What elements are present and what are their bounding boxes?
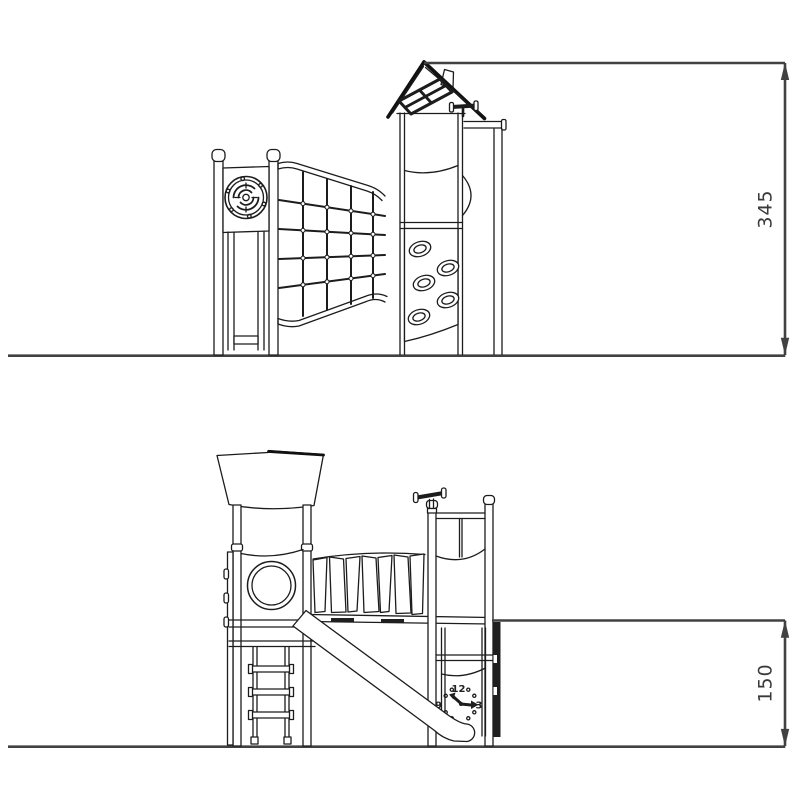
arrowhead-down [781,338,789,356]
upper-panel-edge [405,166,459,173]
porthole [248,562,296,610]
post [233,505,241,746]
slide [293,611,475,742]
bridge-slats [313,554,424,615]
arrowhead-up [781,620,789,638]
post-cap [212,150,225,162]
technical-drawing-canvas: 345 [0,0,800,800]
clock-panel-top [442,668,486,676]
post-cap [427,501,438,509]
side-panel-edge [228,552,234,745]
platform-deck [400,223,463,229]
ladder [249,647,294,744]
maze-game [225,177,267,219]
net-bottom-rail [278,294,387,321]
deck-dash [381,619,404,623]
side-rail [464,120,506,355]
post [214,160,223,355]
post-collar [232,544,243,551]
front-slide [228,232,264,350]
arrowhead-down [781,729,789,747]
post [485,504,493,746]
window-ornament [399,79,452,114]
hold-bump [224,569,229,579]
railing-mullion [460,519,463,558]
post-cap [484,496,495,505]
clock-number-3: 3 [476,701,483,712]
ladder-rung [251,689,291,695]
hold-bump [224,593,229,603]
panel-curve [436,549,485,560]
slide-end-bar [234,336,258,344]
edge-panel-dark [494,622,501,737]
climbing-net [278,162,387,327]
maze-panel-module [212,150,280,356]
hold-bump [224,617,229,627]
dimension-345: 345 [424,63,789,356]
porthole-bulge [463,176,472,216]
net-top-rail [278,162,385,196]
edge-panel-notch [494,655,498,663]
dimension-label-bottom: 150 [755,663,777,702]
tower-module [388,62,506,355]
left-tower [217,451,324,747]
steering-handle [414,488,447,513]
ladder-rung [251,712,291,718]
bottom-elevation-view: 12 3 9 150 [8,451,789,747]
railing-bar [436,513,485,519]
net-connectors [301,202,375,287]
clock-number-12: 12 [452,684,466,695]
dimension-label-top: 345 [755,189,777,228]
arrowhead-up [781,63,789,81]
deck-dash [331,618,354,622]
panel-top-edge [241,550,303,556]
ladder-rung [251,666,291,672]
edge-panel-notch [494,687,498,695]
post-cap [267,150,280,162]
top-elevation-view: 345 [8,62,789,356]
playground-elevation-drawings: 345 [0,0,800,800]
bridge [310,553,490,624]
dimension-150: 150 [492,620,789,746]
tower-roof [217,451,324,509]
post [269,160,278,355]
